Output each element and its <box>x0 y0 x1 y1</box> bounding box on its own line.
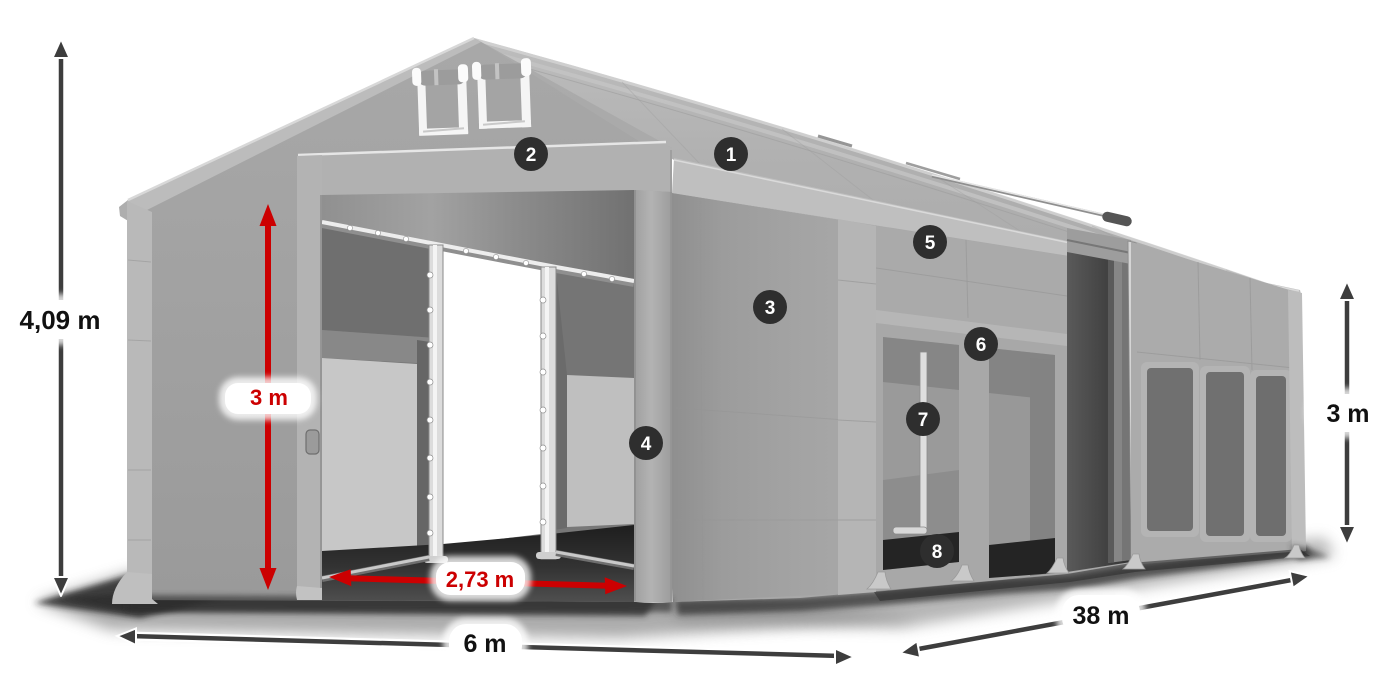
svg-text:4: 4 <box>641 434 652 455</box>
svg-text:7: 7 <box>918 410 929 431</box>
svg-text:3 m: 3 m <box>1326 400 1369 428</box>
svg-text:4,09 m: 4,09 m <box>20 305 101 335</box>
svg-text:38 m: 38 m <box>1073 602 1130 630</box>
svg-text:1: 1 <box>726 145 737 166</box>
svg-text:2: 2 <box>526 145 537 166</box>
svg-text:5: 5 <box>925 233 936 254</box>
svg-text:3 m: 3 m <box>250 385 288 410</box>
svg-text:3: 3 <box>765 298 776 319</box>
svg-text:6 m: 6 m <box>463 630 506 658</box>
svg-text:6: 6 <box>976 335 987 356</box>
svg-text:8: 8 <box>932 542 943 563</box>
svg-text:2,73 m: 2,73 m <box>446 567 515 592</box>
